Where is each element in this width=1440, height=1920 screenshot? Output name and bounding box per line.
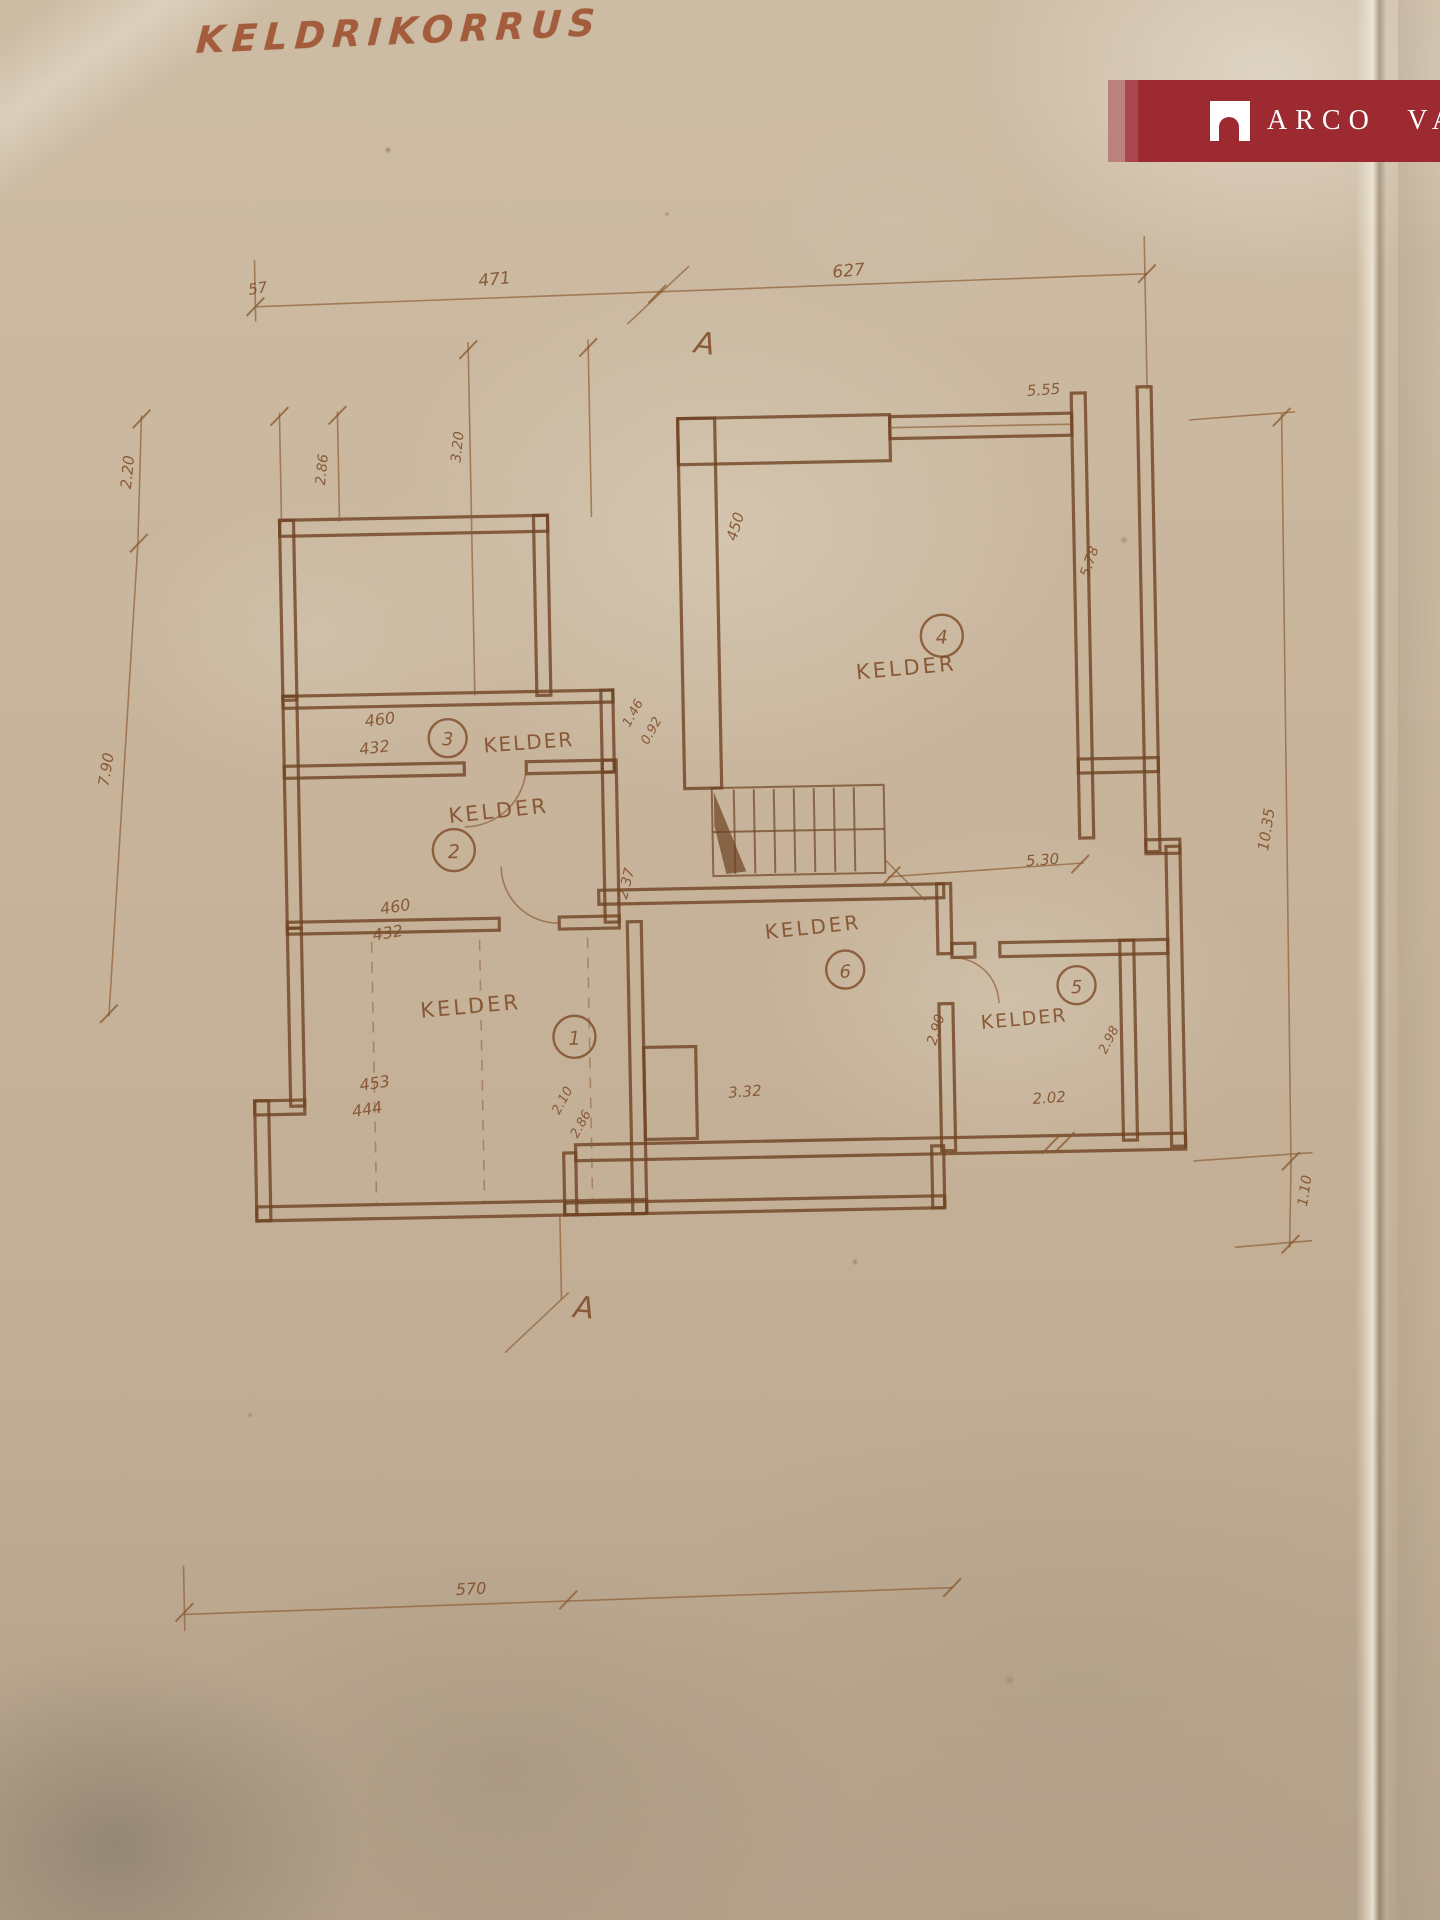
room5-label: KELDER xyxy=(980,1004,1069,1034)
room5-number: 5 xyxy=(1071,977,1083,998)
stairs-direction-arrow xyxy=(714,791,747,874)
room6-dim-c: 5.30 xyxy=(1025,850,1060,870)
room5-dim-b: 2.98 xyxy=(1096,1024,1122,1057)
dim-top-small: 57 xyxy=(247,278,269,299)
floorplan-photo: KELDRIKORRUS ARCO VARA xyxy=(0,0,1440,1920)
room1-dim-b: 444 xyxy=(351,1097,384,1121)
room3-dim-b: 432 xyxy=(358,736,391,759)
room3-dim-d: 0.92 xyxy=(638,715,665,748)
room4-dim-b: 5.78 xyxy=(1077,544,1102,579)
room6-number: 6 xyxy=(839,961,851,982)
floorplan-drawing: 57 471 627 A A 2.20 2.86 3.20 7.90 10.35… xyxy=(0,0,1440,1920)
room4-dim-a: 5.55 xyxy=(1026,380,1061,400)
dim-bottom: 570 xyxy=(455,1579,487,1600)
room6-dim-a: 3.32 xyxy=(728,1082,763,1102)
room1-number: 1 xyxy=(568,1028,581,1050)
room4-number: 4 xyxy=(936,627,949,649)
room1-label: KELDER xyxy=(419,990,522,1023)
room4-label: KELDER xyxy=(855,651,958,684)
room2-dim-b: 432 xyxy=(371,921,404,945)
room1-dim-a: 453 xyxy=(358,1071,391,1095)
room3-dim-a: 460 xyxy=(364,708,397,731)
room1-dim-c: 2.10 xyxy=(549,1084,576,1117)
room3-dim-c: 1.46 xyxy=(620,697,647,730)
section-marker-top: A xyxy=(690,325,717,362)
room-number-circles xyxy=(427,612,1097,1061)
dim-right-main: 10.35 xyxy=(1254,807,1278,852)
room6-label: KELDER xyxy=(764,910,863,944)
room6-dim-b: 2.90 xyxy=(924,1012,948,1047)
room3-number: 3 xyxy=(442,729,454,750)
room2-dim-a: 460 xyxy=(379,895,412,919)
room2-label: KELDER xyxy=(447,794,550,829)
dimension-lines xyxy=(85,234,1320,1632)
dim-ext-left: 2.86 xyxy=(313,453,332,486)
room4-dim-c: 450 xyxy=(723,510,749,543)
dim-left-upper: 2.20 xyxy=(117,455,138,490)
room2-number: 2 xyxy=(448,841,461,863)
room3-label: KELDER xyxy=(483,727,575,757)
dim-ext-mid: 3.20 xyxy=(448,431,467,464)
section-marker-bottom: A xyxy=(570,1290,595,1327)
room5-dim-a: 2.02 xyxy=(1032,1088,1067,1108)
dashed-lines xyxy=(372,938,593,1203)
dim-top-right: 627 xyxy=(832,260,866,283)
dim-top-left: 471 xyxy=(477,268,511,291)
dim-right-small: 1.10 xyxy=(1295,1174,1316,1207)
dim-left-lower: 7.90 xyxy=(95,752,118,788)
